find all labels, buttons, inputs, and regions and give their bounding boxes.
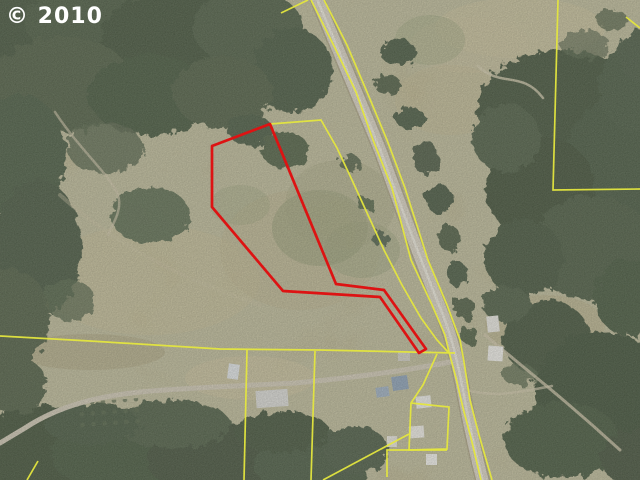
copyright-watermark: © 2010 [6, 4, 103, 29]
aerial-photo-canvas [0, 0, 640, 480]
photo-grain-light [0, 0, 640, 480]
aerial-map: © 2010 [0, 0, 640, 480]
